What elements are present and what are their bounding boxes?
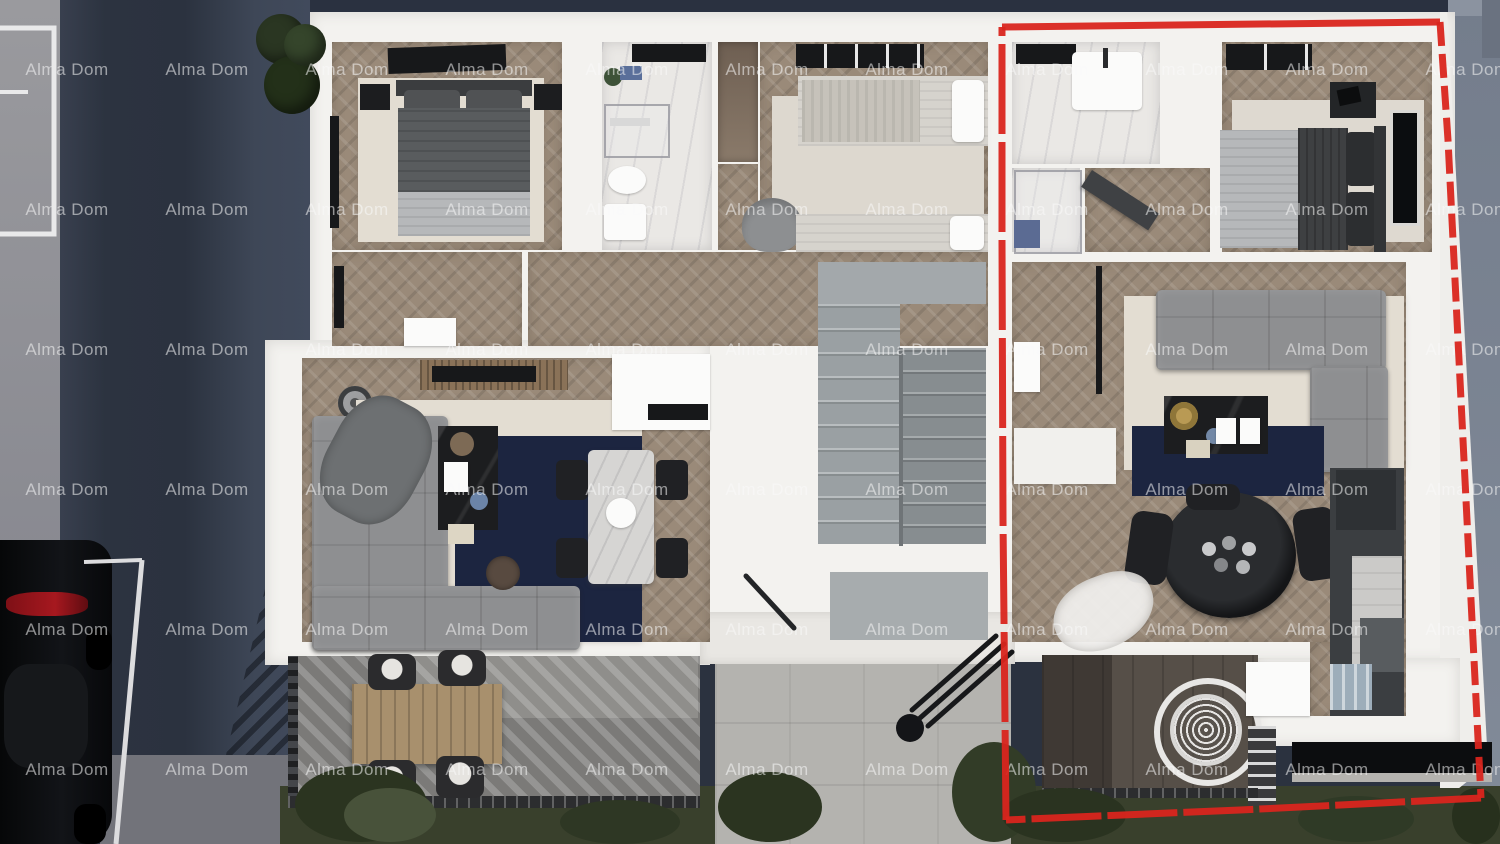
parking-bay-outline bbox=[0, 28, 54, 234]
floorplan-3d-render: Alma DomAlma DomAlma DomAlma DomAlma Dom… bbox=[0, 0, 1500, 844]
entry-handrail bbox=[746, 576, 794, 628]
overlay-graphics bbox=[0, 0, 1500, 844]
outline-top bbox=[1002, 22, 1440, 27]
outline-bottom bbox=[1006, 798, 1481, 820]
outline-right bbox=[1440, 22, 1481, 798]
parking-line-top bbox=[84, 560, 142, 562]
lamp-shadow-bar-3 bbox=[928, 652, 1012, 726]
lamp-shadow-bar-2 bbox=[920, 644, 1004, 718]
outline-left bbox=[1002, 27, 1006, 820]
highlighted-unit-outline bbox=[1002, 22, 1481, 820]
lamp-shadow-bar-1 bbox=[912, 636, 996, 710]
parking-line-side bbox=[116, 560, 142, 844]
